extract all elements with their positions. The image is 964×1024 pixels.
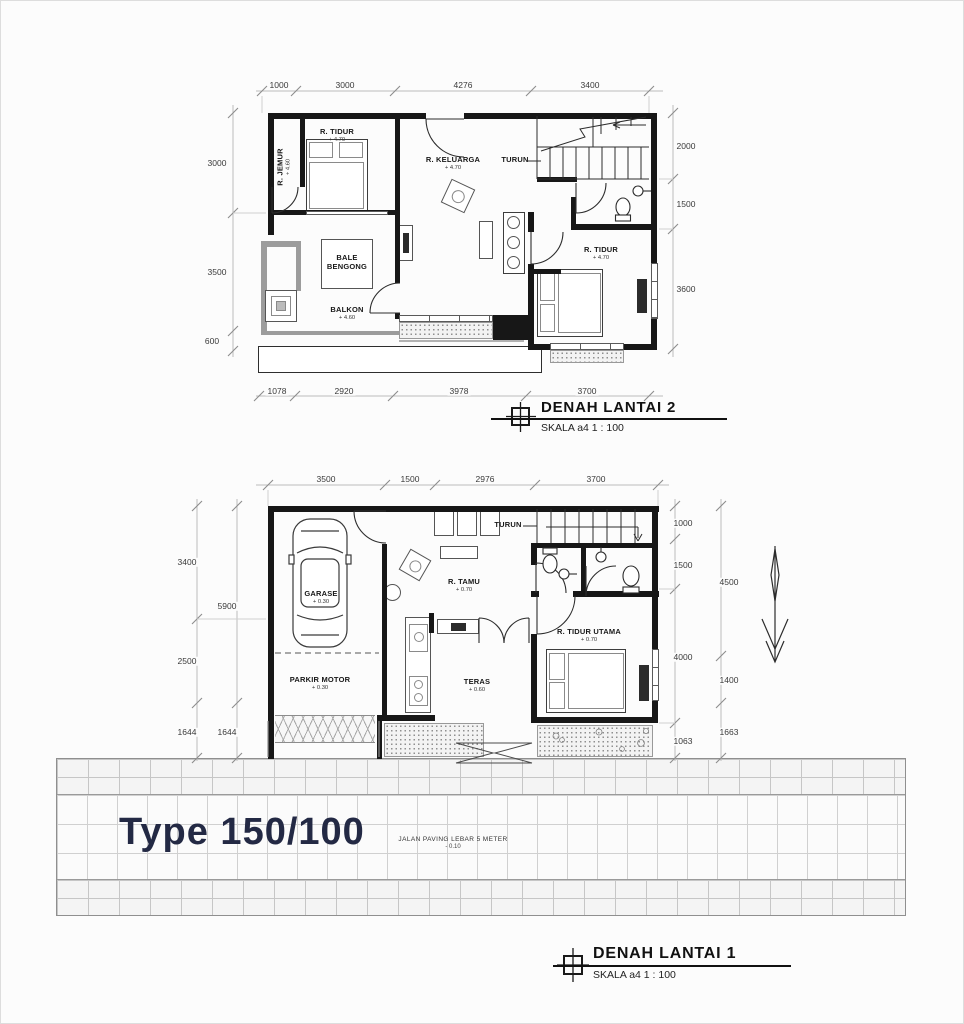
dim-label: 2000	[675, 142, 698, 151]
drawing-element: TURUN	[501, 156, 528, 165]
drawing-element: + 0.70	[557, 637, 621, 644]
dim-label: 1500	[399, 475, 422, 484]
drawing-element: TERAS	[464, 678, 490, 687]
drawing-element	[228, 86, 678, 401]
dim-label: 3700	[585, 475, 608, 484]
dim-label: 1063	[672, 737, 695, 746]
plan1-door-arcs	[354, 511, 616, 643]
room-label-garase: GARASE + 0.30	[304, 590, 337, 605]
dim-label: 1644	[176, 728, 199, 737]
drawing-element: R. JEMUR	[276, 148, 285, 185]
drawing-element	[596, 729, 602, 735]
plan2-dimension-lines	[228, 86, 678, 401]
drawing-element: R. TAMU	[448, 578, 480, 587]
dim-label: 4000	[672, 653, 695, 662]
drawing-element	[596, 552, 606, 562]
room-label-balkon: BALKON + 4.60	[330, 306, 363, 321]
drawing-element: + 0.30	[304, 599, 337, 606]
room-label-r-keluarga: R. KELUARGA + 4.70	[426, 156, 480, 171]
plan1-stairs	[523, 509, 642, 543]
drawing-element: PARKIR MOTOR	[290, 676, 350, 685]
drawing-element: R. TIDUR UTAMA	[557, 628, 621, 637]
plan2-title: DENAH LANTAI 2	[541, 399, 676, 416]
room-label-turun-2: TURUN	[501, 156, 528, 165]
garden-plants	[553, 728, 649, 751]
dim-label: 1000	[268, 81, 291, 90]
drawing-element	[643, 728, 648, 733]
dim-label: 1663	[718, 728, 741, 737]
drawing-element	[623, 587, 639, 593]
window	[652, 649, 659, 701]
drawing-element	[479, 618, 529, 643]
drawing-element: JALAN PAVING LEBAR 5 METER	[398, 836, 507, 844]
drawing-element	[523, 526, 642, 541]
drawing-element: + 0.30	[290, 685, 350, 692]
drawing-element	[576, 183, 606, 213]
drawing-element: TURUN	[494, 521, 521, 530]
drawing-element	[541, 117, 646, 151]
floor-plan-sheet: Type 150/100 JALAN PAVING LEBAR 5 METER …	[0, 0, 964, 1024]
dim-label: 3000	[334, 81, 357, 90]
drawing-element	[586, 566, 616, 596]
dim-label: 3500	[206, 268, 229, 277]
dim-label: 3400	[176, 558, 199, 567]
dim-label: 3600	[675, 285, 698, 294]
drawing-element	[192, 480, 726, 763]
dim-label: 1644	[216, 728, 239, 737]
drawing-element	[289, 555, 294, 564]
drawing-element: + 4.60	[285, 148, 292, 185]
drawing-element	[272, 187, 298, 213]
section-marker-icon	[506, 402, 536, 432]
car-icon	[289, 519, 351, 647]
dim-label: 3400	[579, 81, 602, 90]
north-arrow-icon	[762, 546, 788, 662]
dim-label: 3500	[315, 475, 338, 484]
drawing-element	[370, 283, 400, 313]
drawing-element: GARASE	[304, 590, 337, 599]
plan2-toilet-icon	[616, 186, 652, 221]
room-label-parkir-motor: PARKIR MOTOR + 0.30	[290, 676, 350, 691]
drawing-element: R. KELUARGA	[426, 156, 480, 165]
drawing-element	[531, 232, 563, 264]
dim-label: 3700	[576, 387, 599, 396]
driveway-edges	[268, 721, 379, 757]
dim-label: 600	[203, 337, 221, 346]
room-label-teras: TERAS + 0.60	[464, 678, 490, 693]
window	[550, 343, 624, 350]
drawing-element	[543, 548, 557, 554]
drawing-element	[638, 740, 645, 747]
dim-label: 1400	[718, 676, 741, 685]
plan1-toilet-icon	[543, 547, 639, 593]
plan2-stairs	[528, 116, 649, 179]
title-underline	[491, 418, 727, 420]
drawing-element	[233, 91, 673, 396]
drawing-element: + 4.60	[330, 315, 363, 322]
drawing-element: + 0.70	[448, 587, 480, 594]
drawing-element	[616, 198, 630, 216]
drawing-element	[633, 186, 643, 196]
dim-label: 1500	[675, 200, 698, 209]
drawing-element: + 4.70	[426, 165, 480, 172]
drawing-element	[623, 566, 639, 586]
dim-label: 5900	[216, 602, 239, 611]
drawing-element	[559, 569, 569, 579]
dim-label: 4276	[452, 81, 475, 90]
room-label-r-tamu: R. TAMU + 0.70	[448, 578, 480, 593]
drawing-element	[537, 509, 635, 543]
drawing-element	[354, 511, 386, 543]
window	[399, 315, 493, 322]
dim-label: 1078	[266, 387, 289, 396]
drawing-element	[553, 733, 559, 739]
room-label-r-tidur-1: R. TIDUR + 4.70	[320, 128, 354, 143]
plan1-title: DENAH LANTAI 1	[593, 945, 736, 963]
drawing-element: R. TIDUR	[584, 246, 618, 255]
drawing-element: + 0.60	[464, 687, 490, 694]
dim-label: 3000	[206, 159, 229, 168]
dim-label: 2920	[333, 387, 356, 396]
plan1-dimension-lines	[192, 480, 726, 763]
entry-step	[456, 743, 532, 763]
window	[651, 263, 658, 319]
drawing-element	[506, 402, 536, 432]
drawing-element: + 4.70	[584, 255, 618, 262]
plan-linework	[1, 1, 964, 1024]
room-label-r-tidur-utama: R. TIDUR UTAMA + 0.70	[557, 628, 621, 643]
drawing-element: BALKON	[330, 306, 363, 315]
road-label: JALAN PAVING LEBAR 5 METER - 0.10	[398, 836, 507, 852]
room-label-turun-1: TURUN	[494, 521, 521, 530]
dim-label: 1000	[672, 519, 695, 528]
drawing-element: + 4.70	[320, 137, 354, 144]
drawing-element	[346, 555, 351, 564]
drawing-element	[616, 215, 631, 221]
plan2-scale: SKALA a4 1 : 100	[541, 422, 624, 434]
plan2-door-arcs	[272, 119, 606, 313]
room-label-bale-bengong: BALE BENGONG	[322, 254, 372, 271]
drawing-element	[426, 119, 464, 157]
dim-label: 2500	[176, 657, 199, 666]
plan1-scale: SKALA a4 1 : 100	[593, 969, 676, 981]
room-label-r-tidur-2: R. TIDUR + 4.70	[584, 246, 618, 261]
title-underline	[553, 965, 791, 967]
drawing-element	[560, 738, 565, 743]
drawing-element: BALE BENGONG	[322, 254, 372, 271]
drawing-element	[543, 555, 557, 573]
drawing-element	[197, 490, 675, 723]
dim-label: 2976	[474, 475, 497, 484]
dim-label: 1500	[672, 561, 695, 570]
window	[306, 211, 388, 215]
dim-label: 4500	[718, 578, 741, 587]
drawing-element: R. TIDUR	[320, 128, 354, 137]
dim-label: 3978	[448, 387, 471, 396]
house-type-label: Type 150/100	[119, 811, 365, 854]
drawing-element: - 0.10	[398, 844, 507, 852]
drawing-element	[620, 747, 625, 752]
drawing-element	[197, 485, 721, 761]
room-label-r-jemur: R. JEMUR + 4.60	[276, 148, 291, 185]
